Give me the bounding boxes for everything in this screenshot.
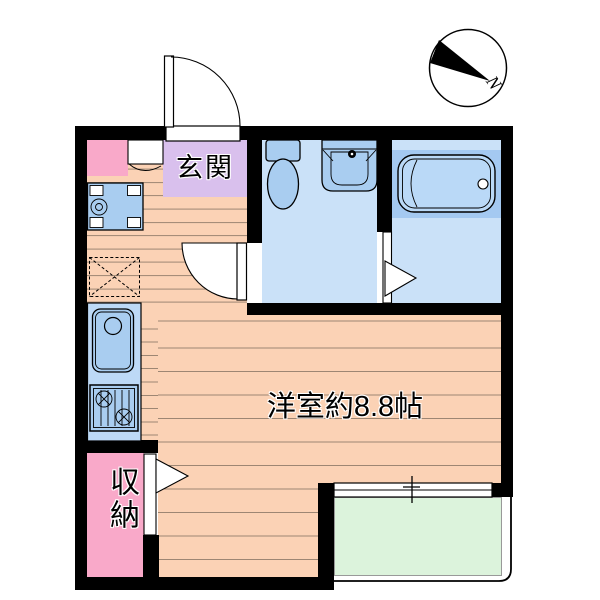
sliding-window-icon xyxy=(334,476,492,503)
fixtures-overlay: N xyxy=(0,0,600,600)
compass: N xyxy=(430,30,507,107)
toilet-room-door-icon xyxy=(182,243,247,300)
entrance-inner-door-icon xyxy=(128,140,163,171)
main-room-label: 洋室約8.8帖 xyxy=(225,383,465,425)
bathtub-drain-icon xyxy=(478,179,488,189)
wash-basin-icon xyxy=(322,140,377,191)
refrigerator-space-icon xyxy=(90,258,140,297)
faucet-icon xyxy=(105,318,122,335)
toilet-icon xyxy=(266,140,300,209)
entrance-door-icon xyxy=(165,56,241,141)
gas-stove-icon xyxy=(90,385,138,431)
balcony-railing xyxy=(334,497,511,581)
entrance-label: 玄関 xyxy=(160,146,250,185)
bathtub-icon xyxy=(398,155,495,212)
storage-door-icon xyxy=(144,454,188,535)
bathroom-door-icon xyxy=(383,232,416,303)
washing-machine-pan-icon xyxy=(88,183,144,230)
kitchen-counter-icon xyxy=(88,303,142,441)
storage-label: 収納 xyxy=(99,466,143,578)
floor-plan: N xyxy=(0,0,600,600)
